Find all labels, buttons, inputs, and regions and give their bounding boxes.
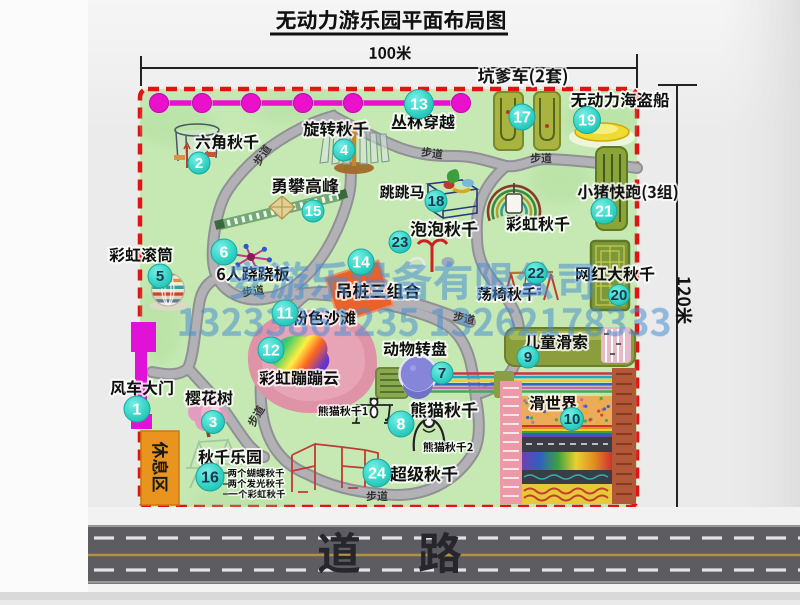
- svg-text:20: 20: [611, 287, 628, 304]
- svg-text:18: 18: [428, 193, 445, 210]
- svg-text:10: 10: [564, 411, 581, 428]
- svg-text:24: 24: [368, 465, 386, 482]
- svg-text:5: 5: [156, 268, 164, 285]
- svg-text:19: 19: [578, 112, 596, 129]
- svg-text:8: 8: [397, 416, 406, 433]
- svg-text:21: 21: [595, 203, 613, 220]
- svg-text:2: 2: [195, 155, 203, 172]
- svg-text:1: 1: [133, 401, 142, 418]
- svg-text:12: 12: [262, 342, 280, 359]
- svg-text:14: 14: [352, 254, 370, 271]
- svg-text:6: 6: [220, 244, 229, 261]
- svg-text:17: 17: [513, 109, 531, 126]
- svg-text:16: 16: [201, 469, 219, 486]
- svg-text:7: 7: [438, 365, 446, 382]
- svg-text:22: 22: [528, 265, 545, 282]
- svg-text:23: 23: [392, 234, 409, 251]
- svg-text:4: 4: [340, 142, 349, 159]
- svg-text:15: 15: [305, 203, 322, 220]
- svg-text:9: 9: [524, 349, 532, 366]
- svg-text:11: 11: [277, 305, 294, 322]
- svg-text:3: 3: [209, 414, 217, 431]
- svg-text:13: 13: [410, 96, 428, 113]
